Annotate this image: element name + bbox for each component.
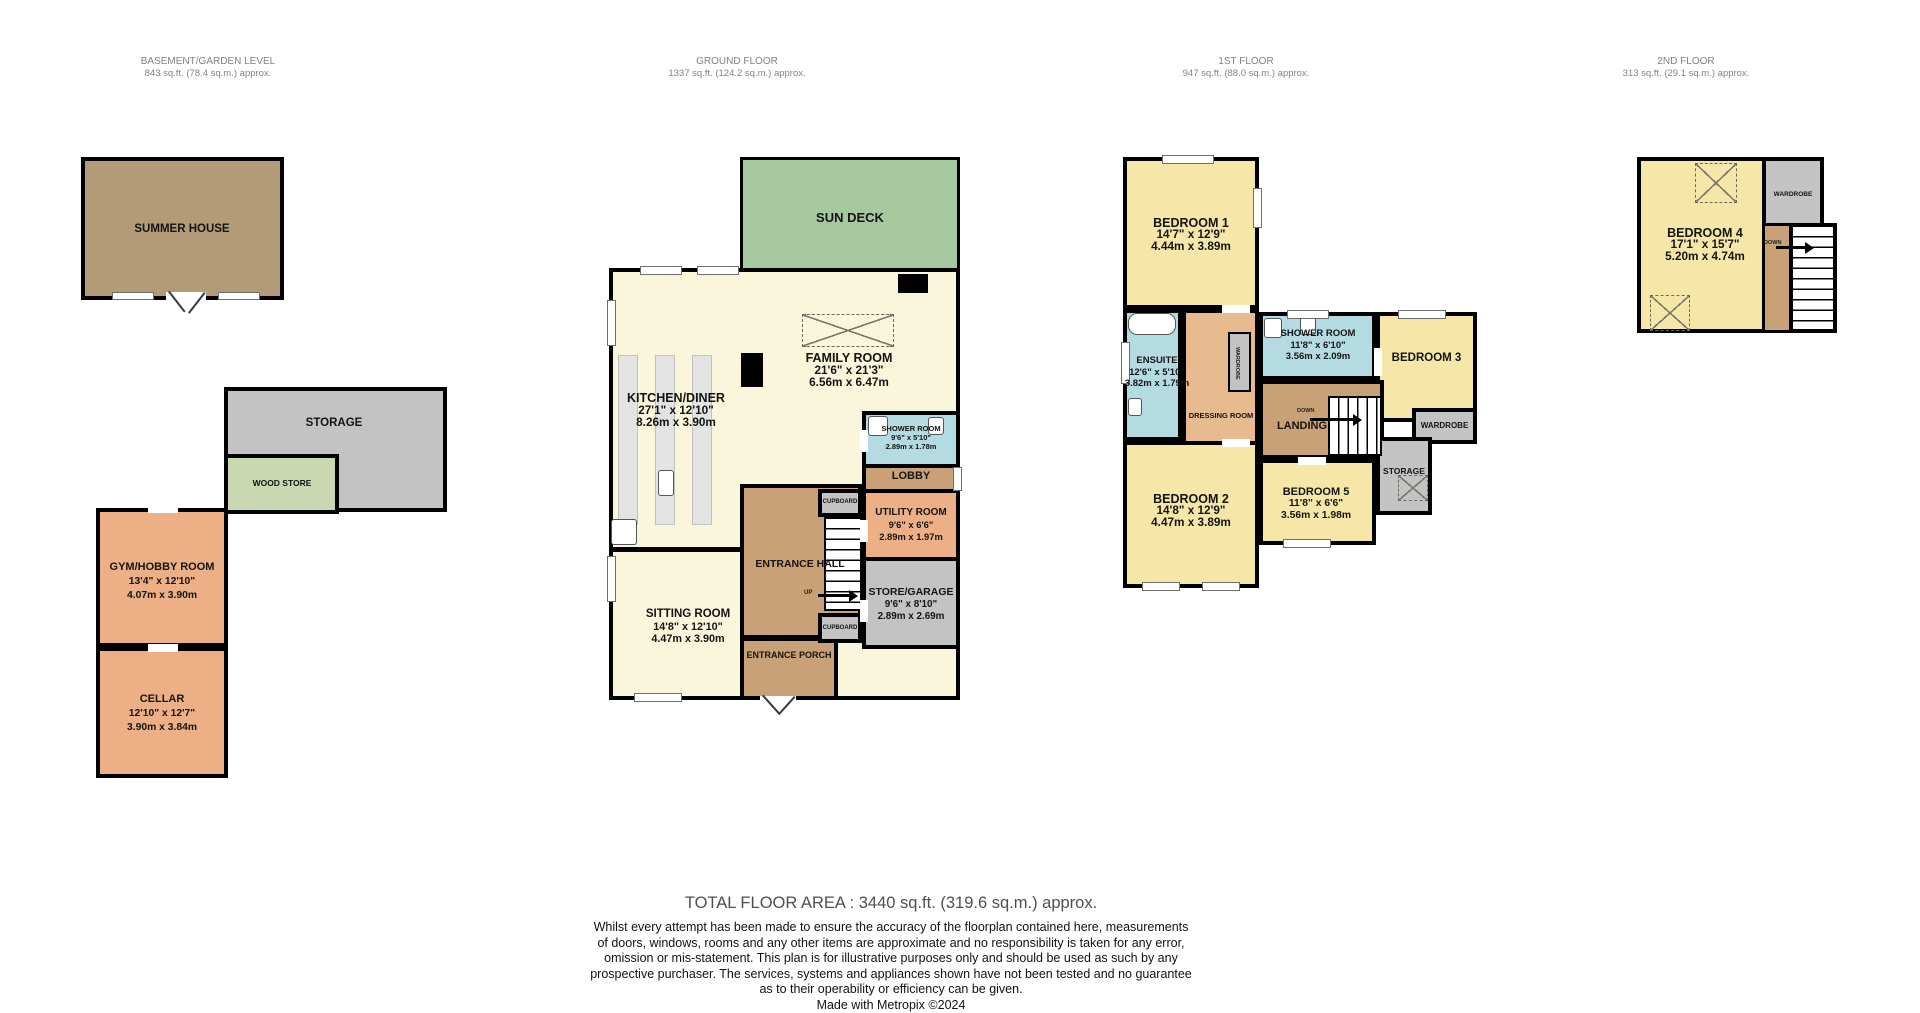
floor-header-basement: BASEMENT/GARDEN LEVEL 843 sq.ft. (78.4 s… <box>108 56 308 80</box>
window <box>112 292 154 300</box>
label-wardrobe-second: WARDROBE <box>1761 191 1825 198</box>
room-dims-ft: 12'10" x 12'7" <box>94 707 230 722</box>
disclaimer-line: prospective purchaser. The services, sys… <box>491 967 1291 983</box>
label-bedroom4: BEDROOM 4 17'1" x 15'7" 5.20m x 4.74m <box>1645 227 1765 263</box>
window <box>607 556 616 602</box>
floor-title: 1ST FLOOR <box>1146 56 1346 68</box>
room-name: STORE/GARAGE <box>862 586 960 599</box>
room-name: WARDROBE <box>1412 421 1477 430</box>
room-name: SUMMER HOUSE <box>102 223 262 235</box>
room-name: LANDING <box>1262 420 1342 432</box>
room-name: ENTRANCE HALL <box>744 558 856 570</box>
label-kitchen: KITCHEN/DINER 27'1" x 12'10" 8.26m x 3.9… <box>596 392 756 430</box>
floor-title: BASEMENT/GARDEN LEVEL <box>108 56 308 68</box>
door-opening <box>1222 305 1250 313</box>
label-wardrobe-right: WARDROBE <box>1412 421 1477 430</box>
label-storage-basement: STORAGE <box>264 417 404 429</box>
label-summer-house: SUMMER HOUSE <box>102 223 262 235</box>
room-dims-ft: 13'4" x 12'10" <box>94 575 230 590</box>
label-bedroom1: BEDROOM 1 14'7" x 12'9" 4.44m x 3.89m <box>1118 217 1264 253</box>
skylight-marker <box>1398 475 1428 501</box>
room-name: WARDROBE <box>1761 191 1825 198</box>
room-name: KITCHEN/DINER <box>596 392 756 405</box>
room-name: WOOD STORE <box>226 478 338 488</box>
room-name: BEDROOM 3 <box>1376 352 1477 364</box>
stairs-direction-arrow <box>1776 246 1806 249</box>
window <box>1398 310 1446 319</box>
floor-header-second: 2ND FLOOR 313 sq.ft. (29.1 sq.m.) approx… <box>1586 56 1786 80</box>
total-floor-area: TOTAL FLOOR AREA : 3440 sq.ft. (319.6 sq… <box>491 894 1291 913</box>
label-ensuite: ENSUITE 12'6" x 5'10" 3.82m x 1.79m <box>1114 355 1200 390</box>
room-name: ENTRANCE PORCH <box>738 650 840 660</box>
room-entrance-porch <box>740 637 838 700</box>
room-dims-m: 2.89m x 1.97m <box>864 531 958 543</box>
floorplan-canvas: BASEMENT/GARDEN LEVEL 843 sq.ft. (78.4 s… <box>0 0 1920 1013</box>
room-dims-m: 2.89m x 1.78m <box>866 442 956 451</box>
room-dims-ft: 9'6" x 5'10" <box>866 433 956 442</box>
disclaimer-line: Whilst every attempt has been made to en… <box>491 920 1291 936</box>
room-dims-m: 3.90m x 3.84m <box>94 721 230 736</box>
label-store-garage: STORE/GARAGE 9'6" x 8'10" 2.89m x 2.69m <box>862 586 960 624</box>
room-name: CUPBOARD <box>816 625 864 631</box>
bath-fixture <box>1128 313 1176 335</box>
window <box>1142 582 1180 591</box>
room-dims-m: 3.56m x 1.98m <box>1256 510 1376 522</box>
room-dims-m: 4.44m x 3.89m <box>1118 241 1264 253</box>
kitchen-counter <box>692 355 712 525</box>
label-dressing: DRESSING ROOM <box>1182 411 1260 420</box>
label-shower-first: SHOWER ROOM 11'8" x 6'10" 3.56m x 2.09m <box>1258 328 1378 363</box>
room-name: UTILITY ROOM <box>864 507 958 519</box>
label-wardrobe-mid: WARDROBE <box>1234 338 1240 388</box>
room-name: ENSUITE <box>1114 355 1200 367</box>
room-name: SHOWER ROOM <box>1258 328 1378 340</box>
room-name: CELLAR <box>94 692 230 707</box>
sink-fixture <box>658 470 674 496</box>
window <box>218 292 260 300</box>
floor-area: 1337 sq.ft. (124.2 sq.m.) approx. <box>637 68 837 80</box>
room-name: GYM/HOBBY ROOM <box>94 560 230 575</box>
window <box>634 693 682 702</box>
room-name: SITTING ROOM <box>613 608 763 621</box>
room-name: CUPBOARD <box>816 499 864 505</box>
door-opening <box>148 505 178 513</box>
room-name: SHOWER ROOM <box>866 424 956 433</box>
label-landing: LANDING <box>1262 420 1342 432</box>
kitchen-counter <box>655 355 675 525</box>
skylight-marker <box>802 314 894 347</box>
kitchen-counter <box>618 355 638 525</box>
room-dims-ft: 9'6" x 6'6" <box>864 519 958 531</box>
disclaimer-line: omission or mis-statement. This plan is … <box>491 951 1291 967</box>
window <box>607 300 616 346</box>
window <box>1162 155 1214 164</box>
label-family: FAMILY ROOM 21'6" x 21'3" 6.56m x 6.47m <box>769 352 929 390</box>
room-name: STORAGE <box>264 417 404 429</box>
label-cupboard-bottom: CUPBOARD <box>816 625 864 631</box>
window <box>640 266 682 275</box>
label-shower-ground: SHOWER ROOM 9'6" x 5'10" 2.89m x 1.78m <box>866 424 956 451</box>
label-utility: UTILITY ROOM 9'6" x 6'6" 2.89m x 1.97m <box>864 507 958 543</box>
floor-area: 947 sq.ft. (88.0 sq.m.) approx. <box>1146 68 1346 80</box>
label-entrance-hall: ENTRANCE HALL <box>744 558 856 570</box>
room-dims-m: 4.47m x 3.90m <box>613 633 763 646</box>
chimney-column <box>741 353 763 387</box>
internal-wall <box>609 547 740 552</box>
hob-fixture <box>611 519 637 545</box>
room-dims-m: 4.47m x 3.89m <box>1118 517 1264 529</box>
room-dims-m: 6.56m x 6.47m <box>769 377 929 390</box>
floor-title: GROUND FLOOR <box>637 56 837 68</box>
chimney-column <box>898 274 928 293</box>
window <box>697 266 739 275</box>
skylight-marker <box>1695 163 1737 203</box>
door-opening <box>148 644 178 652</box>
label-bedroom3: BEDROOM 3 <box>1376 352 1477 364</box>
toilet-fixture <box>1128 398 1142 416</box>
disclaimer-line: as to their operability or efficiency ca… <box>491 982 1291 998</box>
stairs-direction-arrow <box>818 594 850 597</box>
stairs-down-label: DOWN <box>1297 408 1314 414</box>
floor-area: 843 sq.ft. (78.4 sq.m.) approx. <box>108 68 308 80</box>
credit-line: Made with Metropix ©2024 <box>491 998 1291 1013</box>
skylight-marker <box>1650 295 1690 331</box>
floor-title: 2ND FLOOR <box>1586 56 1786 68</box>
label-cupboard-top: CUPBOARD <box>816 499 864 505</box>
stairs-up-label: UP <box>804 590 812 596</box>
room-dims-m: 5.20m x 4.74m <box>1645 251 1765 263</box>
label-porch: ENTRANCE PORCH <box>738 650 840 660</box>
door-opening <box>1298 457 1326 465</box>
floor-area: 313 sq.ft. (29.1 sq.m.) approx. <box>1586 68 1786 80</box>
room-dims-m: 3.82m x 1.79m <box>1114 378 1200 390</box>
footer: TOTAL FLOOR AREA : 3440 sq.ft. (319.6 sq… <box>491 894 1291 1013</box>
floor-header-ground: GROUND FLOOR 1337 sq.ft. (124.2 sq.m.) a… <box>637 56 837 80</box>
room-dims-ft: 11'8" x 6'10" <box>1258 340 1378 352</box>
window <box>1283 539 1331 548</box>
room-dims-ft: 14'8" x 12'10" <box>613 621 763 634</box>
label-sun-deck: SUN DECK <box>777 210 923 225</box>
room-dims-ft: 11'8" x 6'6" <box>1256 498 1376 510</box>
label-storage-first: STORAGE <box>1374 466 1434 476</box>
room-bedroom3 <box>1376 312 1477 422</box>
label-bedroom5: BEDROOM 5 11'8" x 6'6" 3.56m x 1.98m <box>1256 486 1376 522</box>
room-dims-m: 4.07m x 3.90m <box>94 589 230 604</box>
room-dims-ft: 9'6" x 8'10" <box>862 599 960 612</box>
disclaimer-line: of doors, windows, rooms and any other i… <box>491 936 1291 952</box>
window <box>1202 582 1240 591</box>
label-gym: GYM/HOBBY ROOM 13'4" x 12'10" 4.07m x 3.… <box>94 560 230 604</box>
label-wood-store: WOOD STORE <box>226 478 338 488</box>
room-name: STORAGE <box>1374 466 1434 476</box>
room-dims-ft: 12'6" x 5'10" <box>1114 367 1200 379</box>
stairs <box>1789 223 1837 333</box>
room-dims-m: 2.89m x 2.69m <box>862 611 960 624</box>
room-name: DRESSING ROOM <box>1182 411 1260 420</box>
label-sitting: SITTING ROOM 14'8" x 12'10" 4.47m x 3.90… <box>613 608 763 646</box>
room-name: LOBBY <box>864 470 958 482</box>
label-lobby: LOBBY <box>864 470 958 482</box>
room-name: SUN DECK <box>777 210 923 225</box>
label-cellar: CELLAR 12'10" x 12'7" 3.90m x 3.84m <box>94 692 230 736</box>
door-opening <box>1222 439 1250 447</box>
room-dims-m: 3.56m x 2.09m <box>1258 351 1378 363</box>
floor-header-first: 1ST FLOOR 947 sq.ft. (88.0 sq.m.) approx… <box>1146 56 1346 80</box>
label-bedroom2: BEDROOM 2 14'8" x 12'9" 4.47m x 3.89m <box>1118 493 1264 529</box>
room-name: BEDROOM 5 <box>1256 486 1376 498</box>
room-name: FAMILY ROOM <box>769 352 929 365</box>
room-dims-m: 8.26m x 3.90m <box>596 417 756 430</box>
window <box>1287 310 1329 319</box>
